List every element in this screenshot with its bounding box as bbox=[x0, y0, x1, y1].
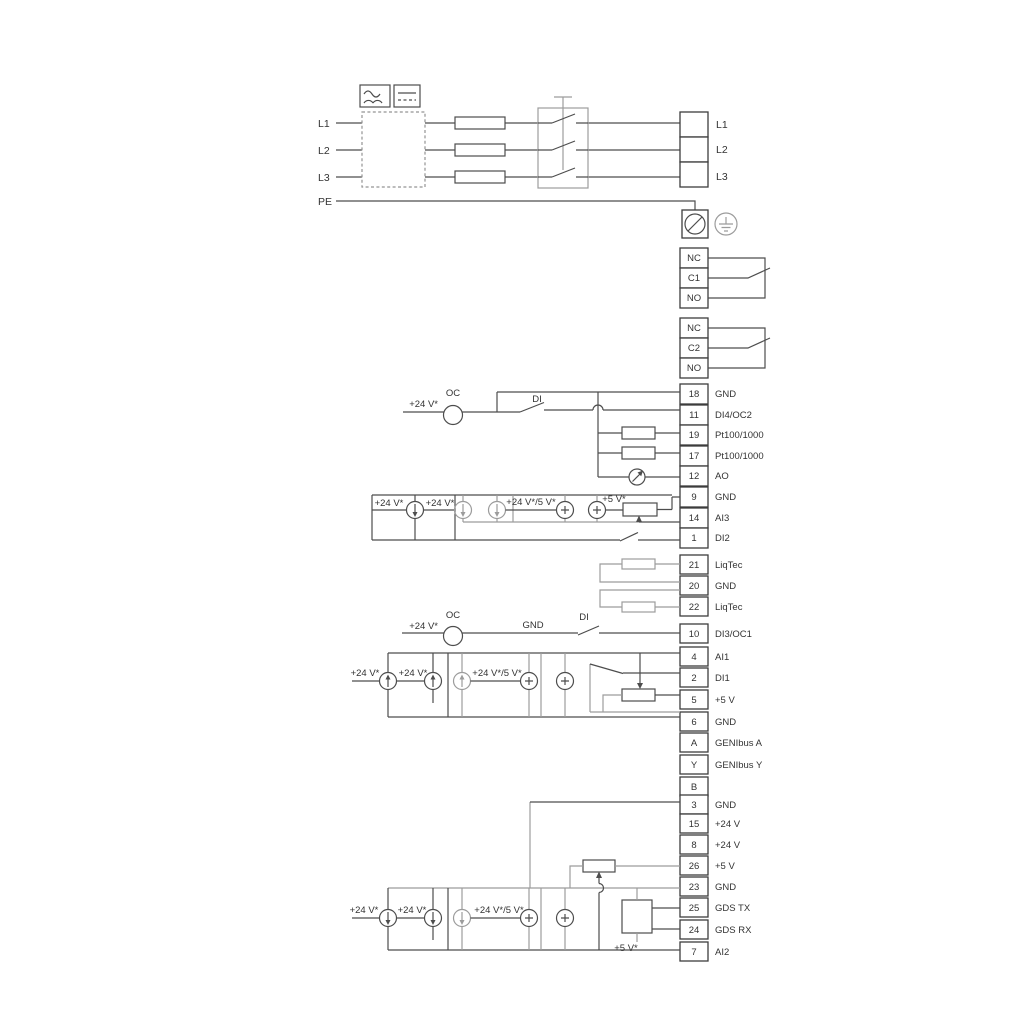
gds-sensor-box bbox=[622, 900, 652, 933]
t17-label: Pt100/1000 bbox=[715, 451, 764, 462]
label-l3: L3 bbox=[318, 172, 330, 184]
t24-num: 24 bbox=[689, 925, 700, 936]
di2-switch-icon bbox=[620, 533, 638, 542]
t8-num: 8 bbox=[691, 840, 696, 851]
di-label: DI bbox=[532, 394, 542, 405]
mains-input-labels: L1 L2 L3 PE bbox=[318, 118, 332, 208]
t7-label: AI2 bbox=[715, 947, 729, 958]
t5-num: 5 bbox=[691, 695, 696, 706]
ac-sine-icon bbox=[364, 91, 380, 97]
t11-label: DI4/OC2 bbox=[715, 410, 752, 421]
liqtec-sensor-icon bbox=[622, 602, 655, 612]
di-label: DI bbox=[579, 612, 589, 623]
t23-label: GND bbox=[715, 882, 736, 893]
fuse-l3-icon bbox=[455, 171, 505, 183]
terminal-out-l2: L2 bbox=[716, 144, 728, 156]
relay2-no: NO bbox=[687, 363, 701, 374]
t1-num: 1 bbox=[691, 533, 696, 544]
t25-label: GDS TX bbox=[715, 903, 751, 914]
t5-label: +5 V bbox=[715, 695, 735, 706]
plus24v-5v-label: +24 V*/5 V* bbox=[506, 497, 556, 508]
oc-label: OC bbox=[446, 610, 460, 621]
relay2-nc: NC bbox=[687, 323, 701, 334]
potentiometer-icon bbox=[622, 689, 655, 701]
t3-label: GND bbox=[715, 800, 736, 811]
di4-oc2-circuit: +24 V* OC DI bbox=[403, 388, 680, 477]
t21-num: 21 bbox=[689, 560, 700, 571]
di1-switch-icon bbox=[590, 664, 623, 674]
t12-num: 12 bbox=[689, 471, 700, 482]
pt100-sensor-icon bbox=[622, 427, 655, 439]
diagram-canvas: L1 L2 L3 PE L1 L2 bbox=[0, 0, 1024, 1024]
label-pe: PE bbox=[318, 196, 332, 208]
t12-label: AO bbox=[715, 471, 729, 482]
t9-num: 9 bbox=[691, 492, 696, 503]
filter-box bbox=[360, 85, 425, 187]
t10-label: DI3/OC1 bbox=[715, 629, 752, 640]
mains-terminal-block: L1 L2 L3 bbox=[680, 112, 728, 187]
t19-num: 19 bbox=[689, 430, 700, 441]
ta-num: A bbox=[691, 738, 698, 749]
t11-num: 11 bbox=[689, 410, 699, 421]
t2-num: 2 bbox=[691, 673, 696, 684]
liqtec-sensor-icon bbox=[622, 559, 655, 569]
open-collector-icon bbox=[444, 406, 463, 425]
plus24v-5v-label: +24 V*/5 V* bbox=[472, 668, 522, 679]
terminal-out-l1: L1 bbox=[716, 119, 728, 131]
liqtec-strip: 21 LiqTec 20 GND 22 LiqTec bbox=[600, 555, 743, 616]
t6-num: 6 bbox=[691, 717, 696, 728]
plus24v-label: +24 V* bbox=[375, 498, 404, 509]
di3-switch-icon bbox=[578, 626, 599, 635]
relay2-c2: C2 bbox=[688, 343, 700, 354]
ac-wave-icon bbox=[364, 100, 382, 103]
t3-num: 3 bbox=[691, 800, 696, 811]
t15-label: +24 V bbox=[715, 819, 741, 830]
label-l2: L2 bbox=[318, 145, 330, 157]
t24-label: GDS RX bbox=[715, 925, 752, 936]
t8-label: +24 V bbox=[715, 840, 741, 851]
ai1-sensor-group: +24 V* +24 V* +24 V*/5 V* bbox=[351, 653, 680, 717]
t4-label: AI1 bbox=[715, 652, 729, 663]
relay1-no: NO bbox=[687, 293, 701, 304]
relay1-nc: NC bbox=[687, 253, 701, 264]
relay1-block: NC C1 NO bbox=[680, 248, 770, 308]
plus24v-label: +24 V* bbox=[351, 668, 380, 679]
t14-label: AI3 bbox=[715, 513, 729, 524]
fuse-l2-icon bbox=[455, 144, 505, 156]
plus24v-label: +24 V* bbox=[398, 905, 427, 916]
potentiometer-icon bbox=[623, 503, 657, 516]
label-l1: L1 bbox=[318, 118, 330, 130]
pt100-sensor-icon bbox=[622, 447, 655, 459]
t15-num: 15 bbox=[689, 819, 700, 830]
t10-num: 10 bbox=[689, 629, 700, 640]
plus24v-label: +24 V* bbox=[409, 399, 438, 410]
mains-wires bbox=[336, 123, 695, 210]
terminal-strip2: 10 DI3/OC1 4 AI1 2 DI1 5 +5 V 6 GND A GE… bbox=[680, 624, 763, 796]
terminal-strip3: 3 GND 15 +24 V 8 +24 V 26 +5 V 23 GND 25… bbox=[680, 795, 752, 961]
t9-label: GND bbox=[715, 492, 736, 503]
plus5v-label: +5 V* bbox=[614, 943, 638, 954]
pe-ground bbox=[682, 210, 737, 238]
terminal-out-l3: L3 bbox=[716, 171, 728, 183]
open-collector-icon bbox=[444, 627, 463, 646]
t26-num: 26 bbox=[689, 861, 700, 872]
relay1-changeover-icon bbox=[708, 268, 770, 278]
t22-num: 22 bbox=[689, 602, 700, 613]
t17-num: 17 bbox=[689, 451, 700, 462]
analog-output-meter bbox=[598, 469, 680, 485]
gnd-wire-label: GND bbox=[522, 620, 543, 631]
tb-num: B bbox=[691, 782, 697, 793]
terminal-strip1: 18 GND 11 DI4/OC2 19 Pt100/1000 17 Pt100… bbox=[680, 384, 764, 548]
t26-label: +5 V bbox=[715, 861, 735, 872]
ac-symbol-box bbox=[360, 85, 390, 107]
t23-num: 23 bbox=[689, 882, 700, 893]
fuses bbox=[455, 117, 505, 183]
ty-label: GENIbus Y bbox=[715, 760, 763, 771]
relay2-changeover-icon bbox=[708, 338, 770, 348]
plus24v-label: +24 V* bbox=[399, 668, 428, 679]
pt100-sensors bbox=[598, 427, 680, 459]
plus24v-label: +24 V* bbox=[409, 621, 438, 632]
ai3-sensor-group: +24 V* +24 V* +24 V*/5 V* +5 V* bbox=[372, 494, 680, 541]
t18-num: 18 bbox=[689, 389, 700, 400]
ty-num: Y bbox=[691, 760, 698, 771]
t19-label: Pt100/1000 bbox=[715, 430, 764, 441]
plus24v-label: +24 V* bbox=[426, 498, 455, 509]
t7-num: 7 bbox=[691, 947, 696, 958]
main-switch bbox=[538, 97, 588, 188]
ta-label: GENIbus A bbox=[715, 738, 763, 749]
t1-label: DI2 bbox=[715, 533, 730, 544]
fuse-l1-icon bbox=[455, 117, 505, 129]
wiring-diagram: L1 L2 L3 PE L1 L2 bbox=[0, 0, 1024, 1024]
oc-label: OC bbox=[446, 388, 460, 399]
t18-label: GND bbox=[715, 389, 736, 400]
ai2-gds-group: +24 V* +24 V* +24 V*/5 V* +5 V* bbox=[350, 802, 680, 954]
t2-label: DI1 bbox=[715, 673, 730, 684]
t21-label: LiqTec bbox=[715, 560, 743, 571]
t6-label: GND bbox=[715, 717, 736, 728]
potentiometer-icon bbox=[583, 860, 615, 872]
relay2-block: NC C2 NO bbox=[680, 318, 770, 378]
plus24v-label: +24 V* bbox=[350, 905, 379, 916]
t14-num: 14 bbox=[689, 513, 700, 524]
t22-label: LiqTec bbox=[715, 602, 743, 613]
relay1-c1: C1 bbox=[688, 273, 700, 284]
t25-num: 25 bbox=[689, 903, 700, 914]
di3-oc1-circuit: +24 V* OC GND DI bbox=[402, 610, 680, 646]
t20-label: GND bbox=[715, 581, 736, 592]
plus24v-5v-label: +24 V*/5 V* bbox=[474, 905, 524, 916]
t20-num: 20 bbox=[689, 581, 700, 592]
t4-num: 4 bbox=[691, 652, 696, 663]
dc-symbol-box bbox=[394, 85, 420, 107]
